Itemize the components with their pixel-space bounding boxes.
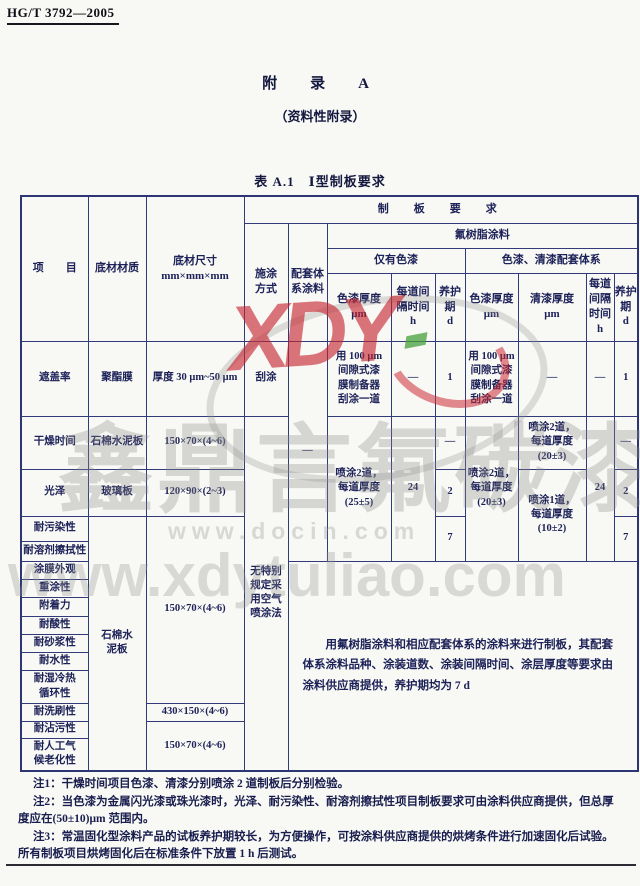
paint-b-merged: 喷涂2道， 每道厚度 (20±3) (465, 416, 518, 561)
col-header-paint-thickness-a: 色漆厚度 μm (327, 273, 391, 341)
row-label-recoat: 重涂性 (21, 579, 88, 597)
lower-size-main-merged: 150×70×(4~6) (146, 516, 244, 703)
row-label-weathering: 耐人工气 候老化性 (21, 738, 88, 771)
drying-time-cure-b: — (614, 416, 638, 469)
gloss-size: 120×90×(2~3) (146, 469, 244, 516)
varnish-b2-merged: 喷涂1道， 每道厚度 (10±2) (518, 469, 586, 561)
row-label-mortar: 耐砂浆性 (21, 634, 88, 652)
hiding-power-interval-b: — (586, 341, 614, 416)
col-header-cure-a: 养护 期 d (435, 273, 465, 341)
gloss-cure-a: 2 (435, 469, 465, 516)
note-1: 注1：干燥时间项目色漆、清漆分别喷涂 2 道制板后分别检验。 (18, 776, 636, 794)
row-label-dirt: 耐沾污性 (21, 721, 88, 738)
note-2-line-1: 注2：当色漆为金属闪光漆或珠光漆时，光泽、耐污染性、耐溶剂擦拭性项目制板要求可由… (18, 794, 636, 812)
lower-size-scrub: 430×150×(4~6) (146, 703, 244, 721)
row-label-adhesion: 附着力 (21, 597, 88, 616)
row-label-hiding-power: 遮盖率 (21, 341, 88, 416)
appendix-subtitle: （资料性附录） (0, 106, 640, 125)
cure-b-7-merged: 7 (614, 516, 638, 561)
drying-time-cure-a: — (435, 416, 465, 469)
lower-material-merged: 石棉水 泥板 (88, 516, 146, 771)
row-label-solvent-rub: 耐溶剂擦拭性 (21, 541, 88, 561)
row-label-scrub: 耐洗刷性 (21, 703, 88, 721)
hiding-power-varnish-b: — (518, 341, 586, 416)
system-coating-dash: — (288, 341, 327, 561)
scanned-standard-page: HG/T 3792—2005 附 录 A （资料性附录） 表 A.1 Ⅰ型制板要… (0, 0, 640, 886)
gloss-cure-b: 2 (614, 469, 638, 516)
paint-a-merged: 喷涂2道， 每道厚度 (25±5) (327, 416, 391, 561)
row-label-drying-time: 干燥时间 (21, 416, 88, 469)
col-header-varnish-thickness-b: 清漆厚度 μm (518, 273, 586, 341)
hiding-power-cure-a: 1 (435, 341, 465, 416)
note-3-line-2: 所有制板项目烘烤固化后在标准条件下放置 1 h 后测试。 (18, 846, 636, 864)
row-label-humid-cycle: 耐湿冷热 循环性 (21, 670, 88, 703)
note-3-line-1: 注3：常温固化型涂料产品的试板养护期较长，为方便操作，可按涂料供应商提供的烘烤条… (18, 829, 636, 847)
col-header-system-coating: 配套体 系涂料 (288, 223, 327, 341)
col-header-fluororesin: 氟树脂涂料 (327, 223, 638, 248)
header-rule (7, 23, 119, 25)
appendix-title: 附 录 A (0, 72, 640, 93)
col-header-paint-thickness-b: 色漆厚度 μm (465, 273, 518, 341)
drying-time-size: 150×70×(4~6) (146, 416, 244, 469)
row-label-gloss: 光泽 (21, 469, 88, 516)
col-header-cure-b: 养护 期 d (614, 273, 638, 341)
row-label-water: 耐水性 (21, 652, 88, 670)
interval-b-merged: 24 (586, 416, 614, 561)
hiding-power-paint-a: 用 100 μm 间隙式漆 膜制备器 刮涂一道 (327, 341, 391, 416)
hiding-power-size: 厚度 30 μm~50 μm (146, 341, 244, 416)
gloss-material: 玻璃板 (88, 469, 146, 516)
cure-a-7-merged: 7 (435, 516, 465, 561)
table-notes: 注1：干燥时间项目色漆、清漆分别喷涂 2 道制板后分别检验。 注2：当色漆为金属… (18, 776, 636, 864)
row-label-stain: 耐污染性 (21, 516, 88, 541)
col-header-panel-requirement: 制 板 要 求 (244, 196, 638, 223)
combined-requirement-note: 用氟树脂涂料和相应配套体系的涂料来进行制板，其配套体系涂料品种、涂装道数、涂装间… (288, 561, 638, 771)
requirements-table: 项 目 底材材质 底材尺寸 mm×mm×mm 制 板 要 求 施涂 方式 配套体… (20, 195, 639, 772)
apply-method-merged: 无特别 规定采 用空气 喷涂法 (244, 416, 288, 771)
hiding-power-material: 聚酯膜 (88, 341, 146, 416)
drying-time-varnish-b: 喷涂2道， 每道厚度 (20±3) (518, 416, 586, 469)
col-header-interval-b: 每道 间隔 时间 h (586, 273, 614, 341)
col-header-apply-method: 施涂 方式 (244, 223, 288, 341)
col-header-paint-varnish-system: 色漆、清漆配套体系 (465, 248, 638, 273)
hiding-power-cure-b: 1 (614, 341, 638, 416)
table-title: 表 A.1 Ⅰ型制板要求 (0, 171, 640, 190)
col-header-size: 底材尺寸 mm×mm×mm (146, 196, 244, 341)
interval-a-merged: 24 (391, 416, 435, 561)
row-label-film-appearance: 涂膜外观 (21, 561, 88, 579)
drying-time-material: 石棉水泥板 (88, 416, 146, 469)
page-bottom-rule (6, 864, 636, 866)
standard-number: HG/T 3792—2005 (7, 5, 115, 21)
col-header-item: 项 目 (21, 196, 88, 341)
col-header-only-paint: 仅有色漆 (327, 248, 465, 273)
hiding-power-interval-a: — (391, 341, 435, 416)
col-header-interval-a: 每道间 隔时间 h (391, 273, 435, 341)
row-label-acid: 耐酸性 (21, 616, 88, 634)
hiding-power-method: 刮涂 (244, 341, 288, 416)
col-header-material: 底材材质 (88, 196, 146, 341)
note-2-line-2: 度应在(50±10)μm 范围内。 (18, 811, 636, 829)
lower-size-weather: 150×70×(4~6) (146, 721, 244, 771)
hiding-power-paint-b: 用 100 μm 间隙式漆 膜制备器 刮涂一道 (465, 341, 518, 416)
